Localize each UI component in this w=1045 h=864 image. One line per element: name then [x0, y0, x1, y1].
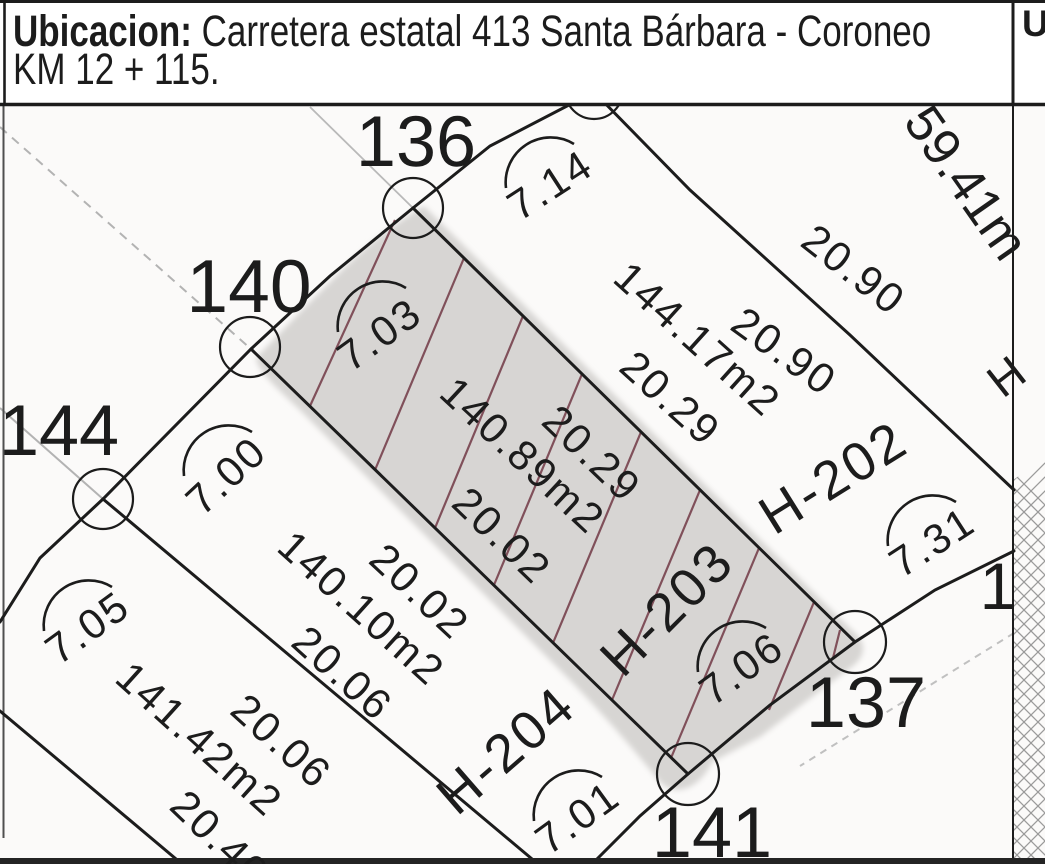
svg-text:KM 12 + 115.: KM 12 + 115. [13, 45, 220, 94]
svg-text:137: 137 [806, 663, 926, 743]
svg-text:U: U [1022, 3, 1045, 44]
svg-text:144: 144 [0, 391, 119, 471]
svg-text:1: 1 [980, 549, 1017, 623]
svg-text:136: 136 [356, 102, 476, 182]
svg-text:140: 140 [186, 244, 311, 328]
svg-text:141: 141 [652, 793, 772, 864]
